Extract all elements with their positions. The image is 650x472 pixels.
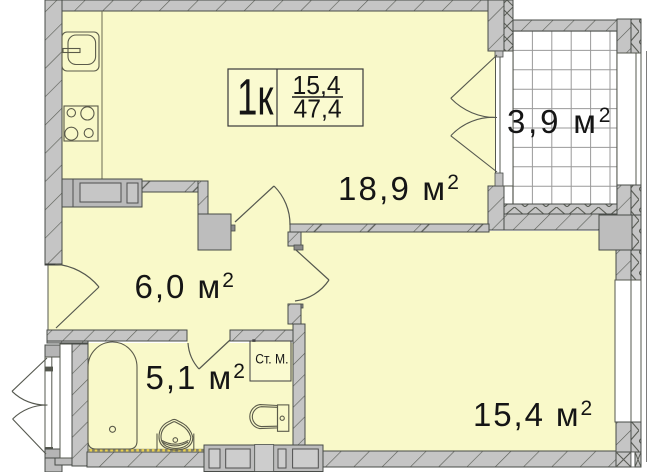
svg-text:15,4 м2: 15,4 м2: [473, 396, 594, 433]
svg-text:3,9 м2: 3,9 м2: [507, 103, 613, 140]
svg-text:6,0 м2: 6,0 м2: [135, 268, 236, 305]
svg-text:5,1 м2: 5,1 м2: [146, 359, 247, 396]
svg-text:18,9 м2: 18,9 м2: [338, 170, 461, 207]
svg-text:Ст. М.: Ст. М.: [255, 351, 288, 367]
svg-text:1к: 1к: [237, 70, 274, 126]
svg-text:47,4: 47,4: [294, 95, 342, 123]
